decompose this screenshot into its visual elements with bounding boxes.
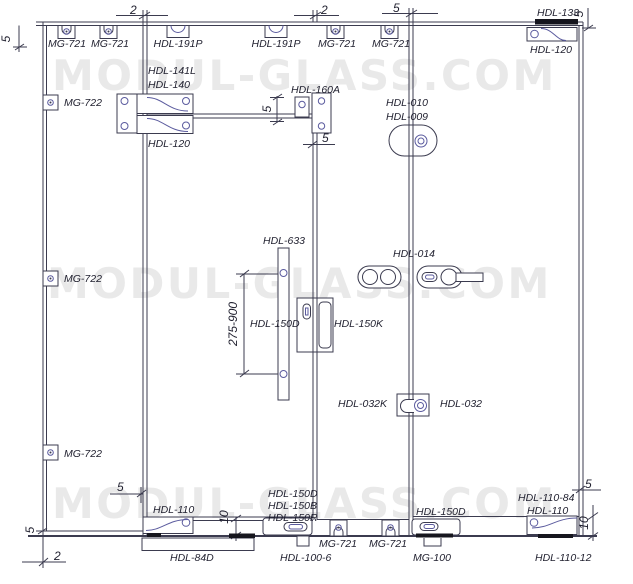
dim-gap-5: 5 bbox=[117, 480, 124, 494]
label-hdl-032k: HDL-032K bbox=[338, 398, 388, 410]
label-hdl-120: HDL-120 bbox=[148, 138, 190, 150]
label-hdl-140: HDL-140 bbox=[148, 79, 190, 91]
label-hdl-150d: HDL-150D bbox=[416, 506, 466, 518]
hdl-110-floor-hinge-icon bbox=[143, 517, 193, 537]
mg-721-clamp-icon bbox=[382, 520, 399, 536]
hdl-160a-bracket-icon bbox=[295, 93, 331, 133]
partition-drawing: MODUL-GLASS.COM MODUL-GLASS.COM MODUL-GL… bbox=[0, 0, 633, 584]
mg-722-clamp-icon bbox=[43, 95, 58, 110]
mg-722-clamp-icon bbox=[43, 271, 58, 286]
label-hdl-110-84: HDL-110-84 bbox=[518, 492, 575, 504]
dim-gap-5: 5 bbox=[23, 526, 37, 533]
label-mg-721: MG-721 bbox=[369, 538, 407, 550]
label-hdl-150k: HDL-150K bbox=[334, 318, 384, 330]
label-hdl-120: HDL-120 bbox=[530, 44, 572, 56]
label-mg-721: MG-721 bbox=[318, 38, 356, 50]
label-mg-722: MG-722 bbox=[64, 448, 102, 460]
label-hdl-009: HDL-009 bbox=[386, 111, 428, 123]
label-mg-721: MG-721 bbox=[319, 538, 357, 550]
dim-gap-5: 5 bbox=[0, 35, 13, 42]
label-hdl-150d: HDL-150D bbox=[250, 318, 300, 330]
hdl-191p-connector-icon bbox=[265, 26, 287, 38]
hdl-110-floor-hinge-icon bbox=[527, 516, 577, 538]
watermark-row-2: MODUL-GLASS.COM bbox=[47, 259, 552, 308]
dim-gap-10: 10 bbox=[577, 516, 591, 530]
hdl-120-hinge-icon bbox=[527, 28, 577, 42]
label-mg-721: MG-721 bbox=[91, 38, 129, 50]
label-hdl-84d: HDL-84D bbox=[170, 552, 214, 564]
label-hdl-014: HDL-014 bbox=[393, 248, 435, 260]
label-mg-722: MG-722 bbox=[64, 273, 102, 285]
mg-100-floor-keep-icon bbox=[416, 534, 453, 547]
dim-handle-height-range: 275-900 bbox=[226, 302, 240, 347]
label-hdl-110-12: HDL-110-12 bbox=[535, 552, 592, 564]
dim-gap-5: 5 bbox=[393, 1, 400, 15]
label-mg-721: MG-721 bbox=[372, 38, 410, 50]
label-hdl-110: HDL-110 bbox=[153, 504, 194, 516]
label-hdl-191p: HDL-191P bbox=[153, 38, 202, 50]
label-hdl-010: HDL-010 bbox=[386, 97, 428, 109]
dim-gap-2: 2 bbox=[53, 549, 61, 563]
mg-721-clamp-icon bbox=[58, 26, 75, 39]
dim-gap-5: 5 bbox=[260, 105, 274, 112]
dim-gap-2: 2 bbox=[129, 3, 137, 17]
label-mg-721: MG-721 bbox=[48, 38, 86, 50]
label-hdl-141l: HDL-141L bbox=[148, 65, 196, 77]
label-hdl-150r: HDL-150R bbox=[268, 512, 318, 524]
mg-721-clamp-icon bbox=[381, 26, 398, 39]
label-hdl-160a: HDL-160A bbox=[291, 84, 340, 96]
hdl-140-top-hinge-icon bbox=[117, 94, 193, 134]
label-hdl-150d: HDL-150D bbox=[268, 488, 318, 500]
label-hdl-633: HDL-633 bbox=[263, 235, 305, 247]
label-mg-722: MG-722 bbox=[64, 97, 102, 109]
mg-721-clamp-icon bbox=[100, 26, 117, 39]
dim-gap-5: 5 bbox=[572, 10, 586, 17]
mg-722-clamp-icon bbox=[43, 445, 58, 460]
dim-gap-2: 2 bbox=[320, 3, 328, 17]
mg-721-clamp-icon bbox=[327, 26, 344, 39]
hdl-133-bar-icon bbox=[535, 19, 578, 25]
label-hdl-110: HDL-110 bbox=[527, 505, 568, 517]
hdl-191p-connector-icon bbox=[167, 26, 189, 38]
label-hdl-150b: HDL-150B bbox=[268, 500, 317, 512]
label-hdl-100-6: HDL-100-6 bbox=[280, 552, 332, 564]
dim-gap-5: 5 bbox=[585, 477, 592, 491]
dim-gap-10: 10 bbox=[217, 510, 231, 524]
hdl-150d-bottom-lock-icon bbox=[412, 519, 460, 535]
dim-gap-5: 5 bbox=[322, 131, 329, 145]
hdl-100-6-socket-icon bbox=[297, 537, 309, 547]
label-hdl-032: HDL-032 bbox=[440, 398, 482, 410]
mg-721-clamp-icon bbox=[330, 520, 347, 536]
label-hdl-191p: HDL-191P bbox=[251, 38, 300, 50]
label-mg-100: MG-100 bbox=[413, 552, 451, 564]
